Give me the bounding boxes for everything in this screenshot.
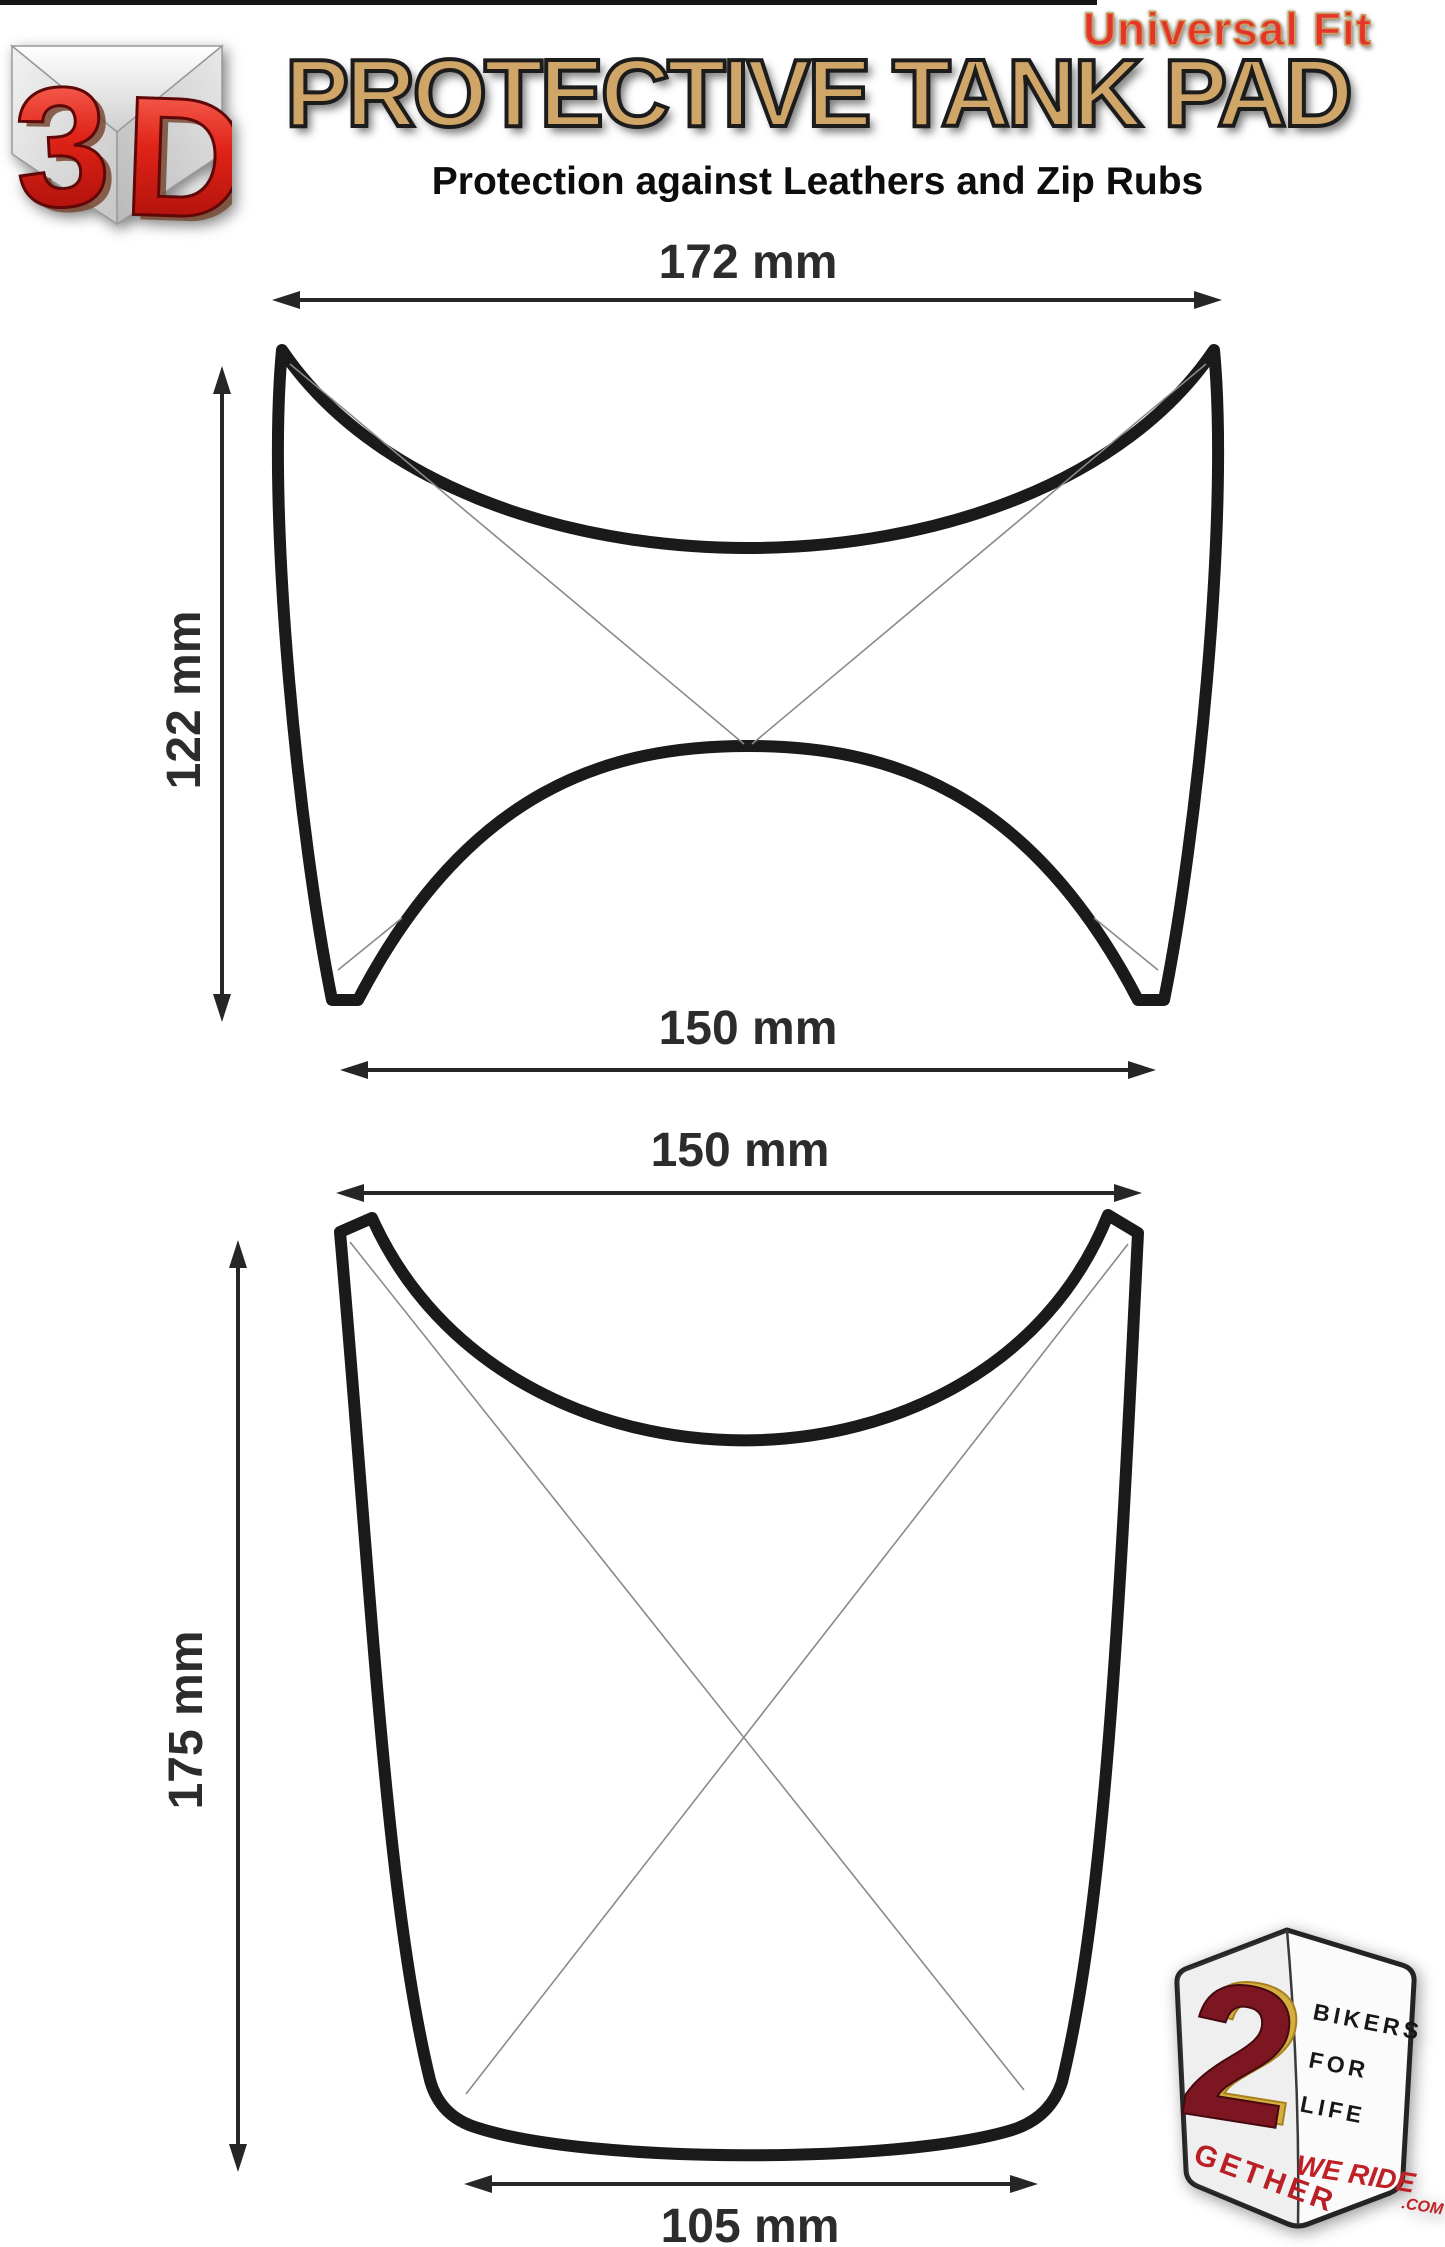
arrow-down-icon [229,2144,247,2172]
top-pad-outline [278,350,1218,1000]
arrow-up-icon [229,1240,247,1268]
dimension-top-width: 172 mm [272,236,1222,309]
logo-letter-3: 3 [10,50,114,232]
arrow-right-icon [1114,1184,1142,1202]
page-title: PROTECTIVE TANK PAD [220,44,1415,145]
construction-line [350,1242,1024,2090]
construction-line [290,364,744,744]
dimension-label: 150 mm [659,1002,838,1055]
dimension-top-height: 122 mm [158,366,231,1022]
construction-line [752,364,1206,744]
arrow-down-icon [213,994,231,1022]
dimension-label: 150 mm [651,1124,830,1177]
arrow-left-icon [272,291,300,309]
dimension-label: 122 mm [158,611,211,790]
bottom-pad-drawing: 150 mm 175 mm 105 mm [160,1124,1142,2247]
top-pad-drawing: 172 mm 122 mm 150 mm [158,236,1222,1079]
dimension-label: 172 mm [659,236,838,289]
page-subtitle: Protection against Leathers and Zip Rubs [220,160,1415,204]
3d-logo-cube: 3 3 D D [2,12,232,232]
product-spec-sheet: 172 mm 122 mm 150 mm [0,0,1445,2247]
drawings-canvas: 172 mm 122 mm 150 mm [0,0,1445,2247]
top-border-line [0,0,1097,5]
bottom-pad-outline [340,1215,1138,2155]
dimension-bottom-width-top: 150 mm [336,1124,1142,1202]
arrow-left-icon [340,1061,368,1079]
dimension-label: 105 mm [661,2200,840,2247]
dimension-bottom-height: 175 mm [160,1240,247,2172]
arrow-left-icon [336,1184,364,1202]
dimension-bottom-bottom-width: 105 mm [464,2175,1038,2247]
dimension-label: 175 mm [160,1631,213,1810]
3d-logo: 3 3 D D [2,12,232,232]
arrow-left-icon [464,2175,492,2193]
arrow-right-icon [1128,1061,1156,1079]
2gether-badge: 2 2 GETHER BIKERS FOR LIFE WE RIDE .COM [1152,1922,1444,2242]
construction-line [466,1244,1128,2094]
badge-com: .COM [1400,2195,1444,2218]
arrow-right-icon [1010,2175,1038,2193]
arrow-up-icon [213,366,231,394]
arrow-right-icon [1194,291,1222,309]
dimension-top-bottom-width: 150 mm [340,1002,1156,1079]
2gether-cube: 2 2 GETHER BIKERS FOR LIFE WE RIDE .COM [1152,1922,1444,2242]
logo-letter-d: D [121,61,232,232]
